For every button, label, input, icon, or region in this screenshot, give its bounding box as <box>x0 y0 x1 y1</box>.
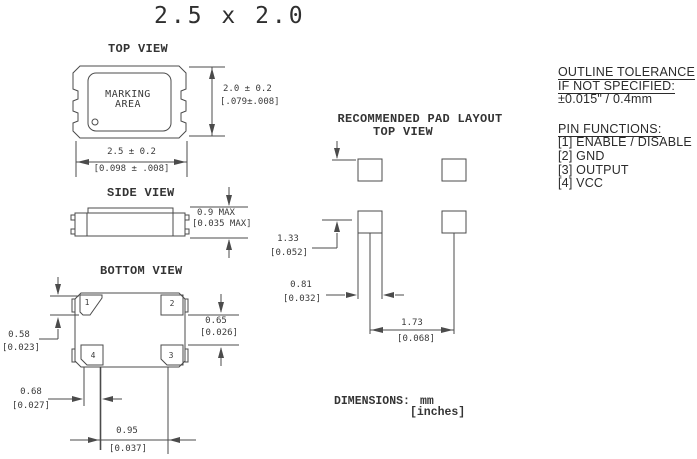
tolerance-value: ±0.015" / 0.4mm <box>558 93 695 107</box>
pad-layout-row-offset-in: [0.052] <box>267 248 311 258</box>
pad-layout-row-offset-mm: 1.33 <box>272 234 304 244</box>
side-view-height-mm: 0.9 MAX <box>197 208 235 218</box>
side-view-outline-group <box>71 208 189 236</box>
pin-function-4: [4] VCC <box>558 177 695 191</box>
pad-layout-label-line2: TOP VIEW <box>372 125 434 139</box>
pad-1-number: 1 <box>82 298 92 307</box>
pin-function-2: [2] GND <box>558 150 695 164</box>
dimensions-note-label: DIMENSIONS: <box>334 395 410 408</box>
pad-gap-mm: 0.65 <box>198 316 234 326</box>
pad-4-number: 4 <box>88 351 98 360</box>
tolerance-heading-line1: OUTLINE TOLERANCE <box>558 66 695 80</box>
pad-height-mm: 0.58 <box>0 330 38 340</box>
panel-spacer <box>558 107 695 123</box>
pad-pitch-mm: 0.95 <box>105 426 149 436</box>
top-view-label: TOP VIEW <box>108 42 168 56</box>
bottom-view-pad-height-dimension <box>39 277 79 339</box>
top-view-width-mm: 2.5 ± 0.2 <box>76 147 187 157</box>
pad-2-number: 2 <box>167 299 177 308</box>
pad-pitch-in: [0.037] <box>103 444 153 454</box>
pad-layout-pitch-in: [0.068] <box>392 334 440 344</box>
page-title: 2.5 x 2.0 <box>154 3 306 29</box>
pad-layout-pitch-mm: 1.73 <box>396 318 428 328</box>
top-view-height-mm: 2.0 ± 0.2 <box>223 84 272 94</box>
marking-area-line2: AREA <box>96 99 160 110</box>
pad-3-number: 3 <box>166 351 176 360</box>
pin-function-3: [3] OUTPUT <box>558 164 695 178</box>
bottom-view-label: BOTTOM VIEW <box>100 264 183 278</box>
pad-layout-pad-width-mm: 0.81 <box>286 280 316 290</box>
top-view-width-in: [0.098 ± .008] <box>70 164 193 174</box>
pad-layout-label-line1: RECOMMENDED PAD LAYOUT <box>327 112 513 126</box>
pad-gap-in: [0.026] <box>196 328 242 338</box>
dimensions-unit-secondary: [inches] <box>410 406 465 419</box>
notes-panel: OUTLINE TOLERANCE IF NOT SPECIFIED: ±0.0… <box>558 66 695 191</box>
top-view-height-in: [.079±.008] <box>220 97 280 107</box>
side-view-height-in: [0.035 MAX] <box>192 219 252 229</box>
bottom-view-lower-dimensions <box>48 367 196 454</box>
pad-width-mm: 0.68 <box>10 387 52 397</box>
pad-layout-pads <box>358 159 466 233</box>
tolerance-heading-line2: IF NOT SPECIFIED: <box>558 80 695 94</box>
package-drawing-sheet: 2.5 x 2.0 TOP VIEW MARKING AREA 2.0 ± 0.… <box>0 0 697 459</box>
side-view-label: SIDE VIEW <box>107 186 175 200</box>
pin-functions-heading: PIN FUNCTIONS: <box>558 123 695 137</box>
pad-height-in: [0.023] <box>0 343 42 353</box>
pad-width-in: [0.027] <box>5 401 57 411</box>
pin-function-1: [1] ENABLE / DISABLE <box>558 136 695 150</box>
pad-layout-pad-width-in: [0.032] <box>280 294 324 304</box>
pad-layout-dimensions <box>312 141 454 334</box>
